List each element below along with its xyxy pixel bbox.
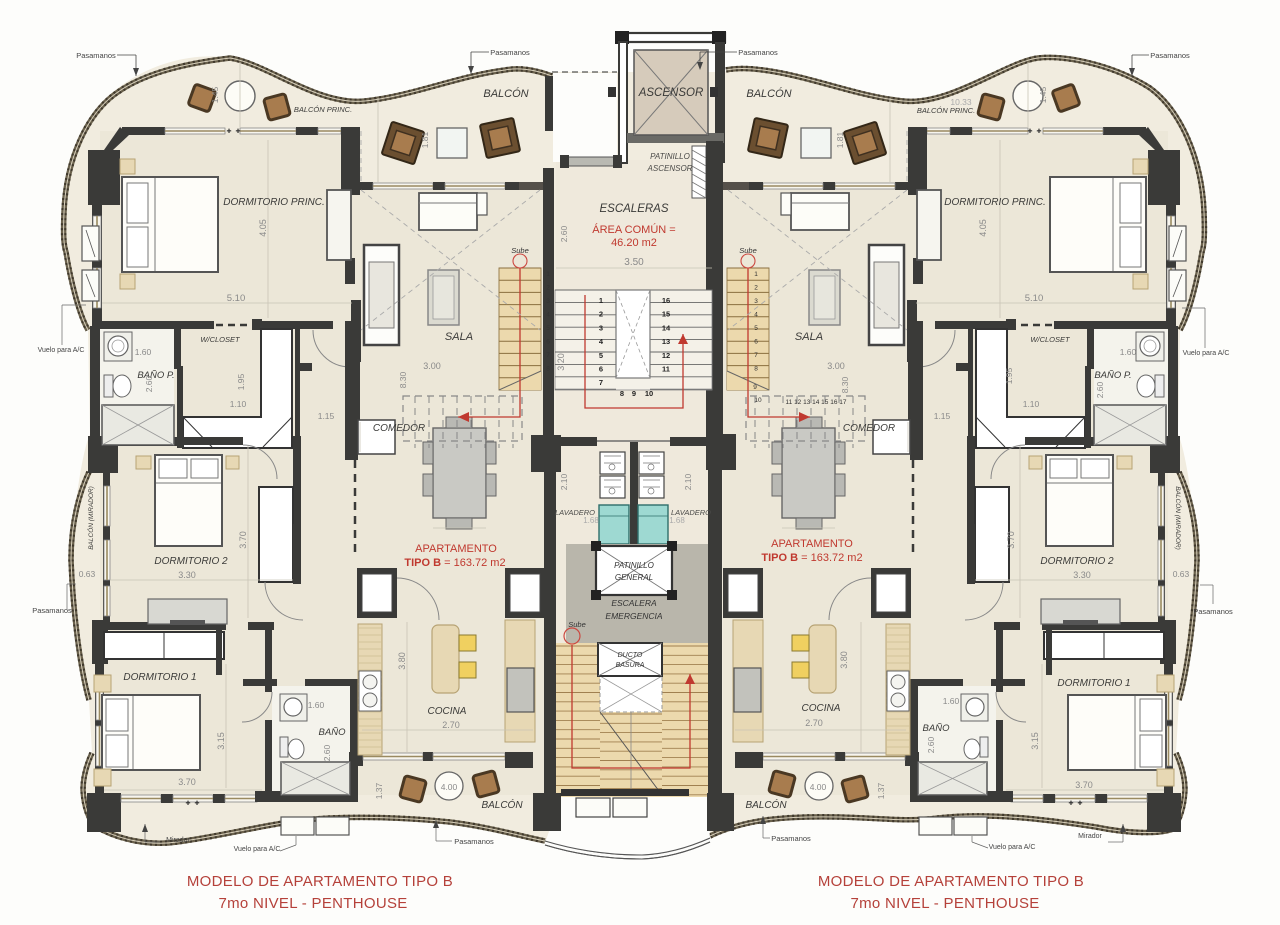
svg-text:MODELO DE APARTAMENTO TIPO B: MODELO DE APARTAMENTO TIPO B <box>187 873 453 890</box>
svg-text:3.70: 3.70 <box>178 777 196 787</box>
svg-text:Pasamanos: Pasamanos <box>76 51 116 60</box>
svg-text:0.63: 0.63 <box>79 569 96 579</box>
svg-text:✚: ✚ <box>235 128 240 135</box>
svg-text:Vuelo para A/C: Vuelo para A/C <box>234 846 281 853</box>
svg-text:7mo NIVEL - PENTHOUSE: 7mo NIVEL - PENTHOUSE <box>850 895 1039 912</box>
svg-text:Pasamanos: Pasamanos <box>1193 607 1233 616</box>
svg-text:0.63: 0.63 <box>1173 569 1190 579</box>
svg-text:W/CLOSET: W/CLOSET <box>1030 335 1071 344</box>
svg-text:4: 4 <box>754 312 758 319</box>
svg-text:6: 6 <box>754 339 758 346</box>
svg-text:8: 8 <box>754 366 758 373</box>
svg-text:Pasamanos: Pasamanos <box>771 834 811 843</box>
svg-text:1.95: 1.95 <box>1004 367 1014 384</box>
svg-text:16: 16 <box>662 296 670 305</box>
svg-text:MODELO DE APARTAMENTO TIPO B: MODELO DE APARTAMENTO TIPO B <box>818 873 1084 890</box>
svg-text:BALCÓN: BALCÓN <box>483 87 528 100</box>
svg-text:8.30: 8.30 <box>840 376 850 393</box>
svg-text:BALCÓN (MIRADOR): BALCÓN (MIRADOR) <box>1174 486 1183 550</box>
svg-text:1.60: 1.60 <box>1120 347 1137 357</box>
svg-text:3.15: 3.15 <box>1030 732 1040 750</box>
svg-text:8: 8 <box>620 389 624 398</box>
svg-text:BASURA: BASURA <box>616 662 645 669</box>
svg-text:BALCÓN (MIRADOR): BALCÓN (MIRADOR) <box>86 486 95 550</box>
svg-text:Pasamanos: Pasamanos <box>1150 51 1190 60</box>
svg-text:Vuelo para A/C: Vuelo para A/C <box>1183 350 1230 357</box>
svg-text:1: 1 <box>599 296 603 305</box>
svg-text:3.80: 3.80 <box>839 651 849 669</box>
svg-text:4.00: 4.00 <box>441 782 458 792</box>
svg-text:1.45: 1.45 <box>1038 86 1048 103</box>
svg-text:5.10: 5.10 <box>1025 293 1044 304</box>
svg-text:Pasamanos: Pasamanos <box>32 606 72 615</box>
svg-text:1.68: 1.68 <box>583 516 599 525</box>
svg-text:2: 2 <box>754 285 758 292</box>
svg-text:1.81: 1.81 <box>420 131 430 148</box>
svg-text:5: 5 <box>754 325 758 332</box>
svg-text:GENERAL: GENERAL <box>615 573 653 582</box>
svg-text:SALA: SALA <box>445 331 473 343</box>
svg-text:APARTAMENTO: APARTAMENTO <box>415 543 497 555</box>
svg-text:2.10: 2.10 <box>559 473 569 490</box>
svg-text:ASCENSOR: ASCENSOR <box>638 87 704 99</box>
svg-text:TIPO B = 163.72 m2: TIPO B = 163.72 m2 <box>404 557 505 569</box>
svg-text:Mirador: Mirador <box>1078 833 1102 840</box>
svg-text:BAÑO: BAÑO <box>319 727 347 738</box>
svg-text:11 12 13 14 15 16 17: 11 12 13 14 15 16 17 <box>786 399 847 406</box>
svg-text:Mirador: Mirador <box>166 837 190 844</box>
svg-text:7: 7 <box>754 352 758 359</box>
svg-text:15: 15 <box>662 310 670 319</box>
svg-text:4.00: 4.00 <box>810 782 827 792</box>
svg-text:DORMITORIO 2: DORMITORIO 2 <box>154 556 228 567</box>
svg-text:✚: ✚ <box>1077 800 1082 807</box>
svg-text:3.70: 3.70 <box>1006 531 1016 549</box>
svg-text:EMERGENCIA: EMERGENCIA <box>605 611 662 621</box>
svg-text:3.70: 3.70 <box>1075 780 1093 790</box>
svg-text:ÁREA COMÚN =: ÁREA COMÚN = <box>592 223 675 236</box>
svg-text:PATINILLO: PATINILLO <box>650 152 690 161</box>
svg-text:2.10: 2.10 <box>683 473 693 490</box>
svg-text:BALCÓN PRINC.: BALCÓN PRINC. <box>294 105 352 114</box>
svg-text:✚: ✚ <box>1027 128 1032 135</box>
svg-text:1.37: 1.37 <box>374 782 384 799</box>
svg-text:7: 7 <box>546 352 550 359</box>
svg-text:1: 1 <box>754 271 758 278</box>
svg-text:2.60: 2.60 <box>1095 381 1105 398</box>
svg-text:Pasamanos: Pasamanos <box>738 48 778 57</box>
svg-text:Vuelo para A/C: Vuelo para A/C <box>989 844 1036 851</box>
svg-text:10: 10 <box>645 389 653 398</box>
svg-text:2.60: 2.60 <box>322 744 332 761</box>
svg-text:1.45: 1.45 <box>210 86 220 103</box>
svg-text:5: 5 <box>546 325 550 332</box>
svg-text:6: 6 <box>599 365 603 374</box>
svg-text:3.80: 3.80 <box>397 652 407 670</box>
svg-text:4: 4 <box>546 312 550 319</box>
svg-text:3.20: 3.20 <box>556 353 566 371</box>
svg-text:✚: ✚ <box>194 800 199 807</box>
svg-text:ESCALERAS: ESCALERAS <box>599 203 668 215</box>
svg-text:3.00: 3.00 <box>423 361 441 371</box>
svg-text:3.30: 3.30 <box>178 570 196 580</box>
svg-text:BAÑO P.: BAÑO P. <box>137 370 174 381</box>
svg-text:Pasamanos: Pasamanos <box>490 48 530 57</box>
svg-text:BALCÓN PRINC.: BALCÓN PRINC. <box>917 106 975 115</box>
svg-text:BALCÓN: BALCÓN <box>745 798 787 811</box>
svg-text:9: 9 <box>753 384 757 391</box>
svg-text:3.30: 3.30 <box>1073 570 1091 580</box>
svg-text:5: 5 <box>599 351 603 360</box>
svg-text:DUCTO: DUCTO <box>618 652 643 659</box>
svg-text:3: 3 <box>546 298 550 305</box>
svg-text:13: 13 <box>662 337 670 346</box>
svg-text:Sube: Sube <box>568 620 586 629</box>
svg-text:COMEDOR: COMEDOR <box>843 423 895 434</box>
svg-text:3: 3 <box>754 298 758 305</box>
svg-text:10: 10 <box>754 397 762 404</box>
svg-text:12: 12 <box>662 351 670 360</box>
svg-text:1.60: 1.60 <box>135 347 152 357</box>
svg-text:2: 2 <box>599 310 603 319</box>
svg-text:6: 6 <box>546 339 550 346</box>
svg-text:DORMITORIO 1: DORMITORIO 1 <box>123 672 196 683</box>
svg-text:3.00: 3.00 <box>827 361 845 371</box>
svg-text:✚: ✚ <box>226 128 231 135</box>
svg-text:✚: ✚ <box>1068 800 1073 807</box>
svg-text:9: 9 <box>632 389 636 398</box>
svg-text:8: 8 <box>546 366 550 373</box>
svg-text:5.10: 5.10 <box>227 293 246 304</box>
svg-text:1.68: 1.68 <box>669 516 685 525</box>
svg-text:1.95: 1.95 <box>236 373 246 390</box>
svg-text:Pasamanos: Pasamanos <box>454 837 494 846</box>
svg-text:1.37: 1.37 <box>876 782 886 799</box>
svg-text:4.05: 4.05 <box>978 219 988 237</box>
svg-text:1.10: 1.10 <box>1023 399 1040 409</box>
svg-text:1.60: 1.60 <box>943 696 960 706</box>
svg-text:DORMITORIO 2: DORMITORIO 2 <box>1040 556 1114 567</box>
svg-text:2.60: 2.60 <box>559 225 569 242</box>
svg-text:APARTAMENTO: APARTAMENTO <box>771 538 853 550</box>
svg-text:1.60: 1.60 <box>308 700 325 710</box>
svg-text:DORMITORIO PRINC.: DORMITORIO PRINC. <box>223 197 324 208</box>
svg-text:BAÑO: BAÑO <box>923 723 951 734</box>
svg-text:✚: ✚ <box>1036 128 1041 135</box>
svg-text:8.30: 8.30 <box>398 371 408 388</box>
svg-text:Vuelo para A/C: Vuelo para A/C <box>38 347 85 354</box>
svg-text:11: 11 <box>662 365 670 374</box>
svg-text:2.60: 2.60 <box>144 375 154 392</box>
svg-text:Sube: Sube <box>739 246 757 255</box>
svg-text:46.20 m2: 46.20 m2 <box>611 237 657 249</box>
svg-text:4.05: 4.05 <box>258 219 268 237</box>
svg-text:14: 14 <box>662 323 671 332</box>
svg-text:3.15: 3.15 <box>216 732 226 750</box>
svg-text:3.70: 3.70 <box>238 531 248 549</box>
svg-text:COCINA: COCINA <box>428 706 467 717</box>
svg-text:3.50: 3.50 <box>624 257 644 268</box>
svg-text:1.15: 1.15 <box>934 411 951 421</box>
svg-text:7: 7 <box>599 378 603 387</box>
svg-text:1.81: 1.81 <box>835 131 845 148</box>
svg-text:BALCÓN: BALCÓN <box>481 798 523 811</box>
svg-text:SALA: SALA <box>795 331 823 343</box>
svg-text:1: 1 <box>546 271 550 278</box>
svg-text:BAÑO P.: BAÑO P. <box>1094 370 1131 381</box>
svg-text:✚: ✚ <box>185 800 190 807</box>
svg-text:DORMITORIO PRINC.: DORMITORIO PRINC. <box>944 197 1045 208</box>
svg-text:2.70: 2.70 <box>442 720 460 730</box>
svg-text:COMEDOR: COMEDOR <box>373 423 425 434</box>
svg-text:DORMITORIO 1: DORMITORIO 1 <box>1057 678 1130 689</box>
svg-text:7mo NIVEL - PENTHOUSE: 7mo NIVEL - PENTHOUSE <box>218 895 407 912</box>
svg-text:TIPO B = 163.72 m2: TIPO B = 163.72 m2 <box>761 552 862 564</box>
svg-text:3: 3 <box>599 323 603 332</box>
svg-text:1.15: 1.15 <box>318 411 335 421</box>
svg-text:Sube: Sube <box>511 246 529 255</box>
svg-text:2.70: 2.70 <box>805 718 823 728</box>
svg-text:2.60: 2.60 <box>926 736 936 753</box>
svg-text:ESCALERA: ESCALERA <box>611 598 657 608</box>
svg-text:2: 2 <box>546 285 550 292</box>
svg-text:BALCÓN: BALCÓN <box>746 87 791 100</box>
svg-text:W/CLOSET: W/CLOSET <box>200 335 241 344</box>
svg-text:PATINILLO: PATINILLO <box>614 561 654 570</box>
svg-text:1.10: 1.10 <box>230 399 247 409</box>
svg-text:COCINA: COCINA <box>802 703 841 714</box>
svg-text:ASCENSOR: ASCENSOR <box>647 164 693 173</box>
